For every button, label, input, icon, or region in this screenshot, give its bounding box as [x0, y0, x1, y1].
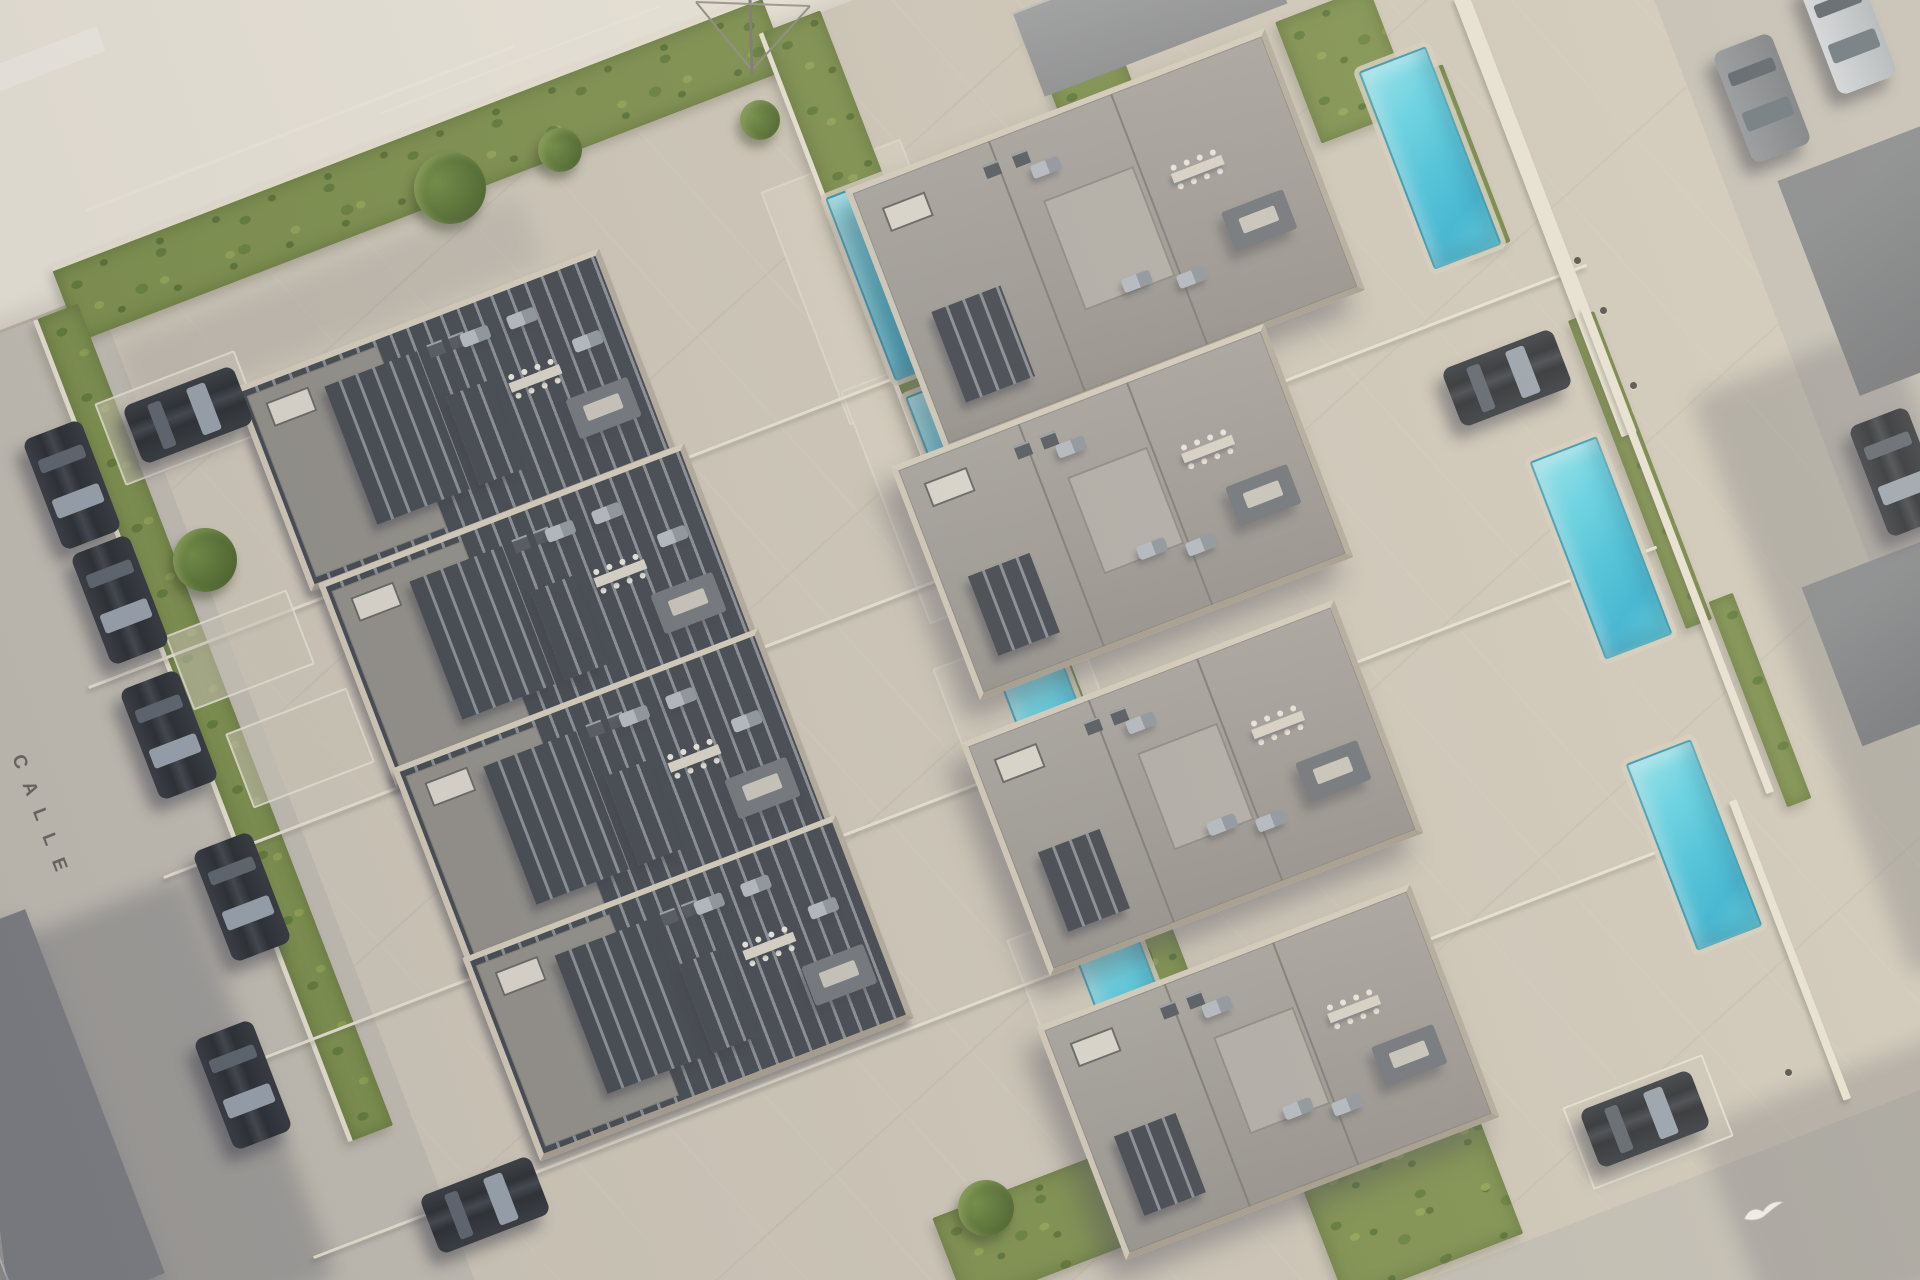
drain-cover	[1630, 382, 1637, 389]
sun-lounger	[618, 704, 651, 728]
skylight	[1070, 1027, 1122, 1068]
roof-pergola	[724, 756, 801, 819]
sun-lounger	[1184, 533, 1217, 557]
ac-unit	[659, 907, 679, 926]
aerial-render-scene: CALLE	[0, 0, 1920, 1280]
sun-lounger	[459, 324, 492, 348]
roof-dining-set	[662, 734, 727, 783]
roof-pergola	[1225, 464, 1302, 527]
skylight	[924, 467, 976, 508]
antenna-mast	[688, 0, 818, 83]
sun-lounger	[1254, 809, 1287, 833]
street-name-label: CALLE	[8, 752, 75, 888]
sun-lounger	[1175, 265, 1208, 289]
car	[1798, 0, 1898, 96]
skylight	[994, 743, 1046, 784]
roof-pergola	[1295, 740, 1372, 803]
sun-lounger	[590, 501, 623, 525]
roof-dining-set	[1165, 144, 1230, 193]
solar-panel-array	[1038, 829, 1130, 933]
ac-unit	[585, 719, 605, 738]
sun-lounger	[544, 519, 577, 543]
ac-unit	[426, 339, 446, 358]
roof-dining-set	[588, 549, 653, 598]
roof-pergola	[800, 943, 877, 1006]
roof-dining-set	[737, 922, 802, 971]
roof-terrace	[1043, 166, 1175, 311]
solar-panel-array	[968, 553, 1060, 657]
drain-cover	[1574, 257, 1581, 264]
solar-panel-array	[931, 286, 1035, 403]
sun-lounger	[730, 709, 763, 733]
sun-lounger	[505, 306, 538, 330]
sun-lounger	[807, 896, 840, 920]
drain-cover	[1785, 1069, 1792, 1076]
ac-unit	[511, 534, 531, 553]
sun-lounger	[1030, 155, 1063, 179]
roof-dining-set	[1245, 701, 1310, 750]
ac-unit	[983, 161, 1003, 180]
roof-pergola	[1221, 189, 1298, 252]
sun-lounger	[1330, 1093, 1363, 1117]
sun-lounger	[656, 524, 689, 548]
drain-cover	[1600, 307, 1607, 314]
sun-lounger	[1055, 435, 1088, 459]
sun-lounger	[1125, 711, 1158, 735]
roof-pergola	[650, 571, 727, 634]
roof-dining-set	[1321, 985, 1386, 1034]
roof-dining-set	[503, 354, 568, 403]
sun-lounger	[740, 874, 773, 898]
sun-lounger	[571, 329, 604, 353]
solar-panel-array	[1114, 1113, 1206, 1217]
roof-pergola	[1371, 1024, 1448, 1087]
sun-lounger	[664, 686, 697, 710]
roof-terrace	[1067, 446, 1184, 574]
car	[1712, 32, 1812, 164]
ac-unit	[1011, 150, 1031, 169]
sun-lounger	[693, 892, 726, 916]
sun-lounger	[1201, 995, 1234, 1019]
skylight	[882, 192, 934, 233]
roof-dining-set	[1175, 425, 1240, 474]
roof-right-upper	[1777, 120, 1920, 396]
roof-terrace	[1137, 722, 1254, 850]
roof-pergola	[565, 376, 642, 439]
roof-terrace	[1213, 1006, 1330, 1134]
